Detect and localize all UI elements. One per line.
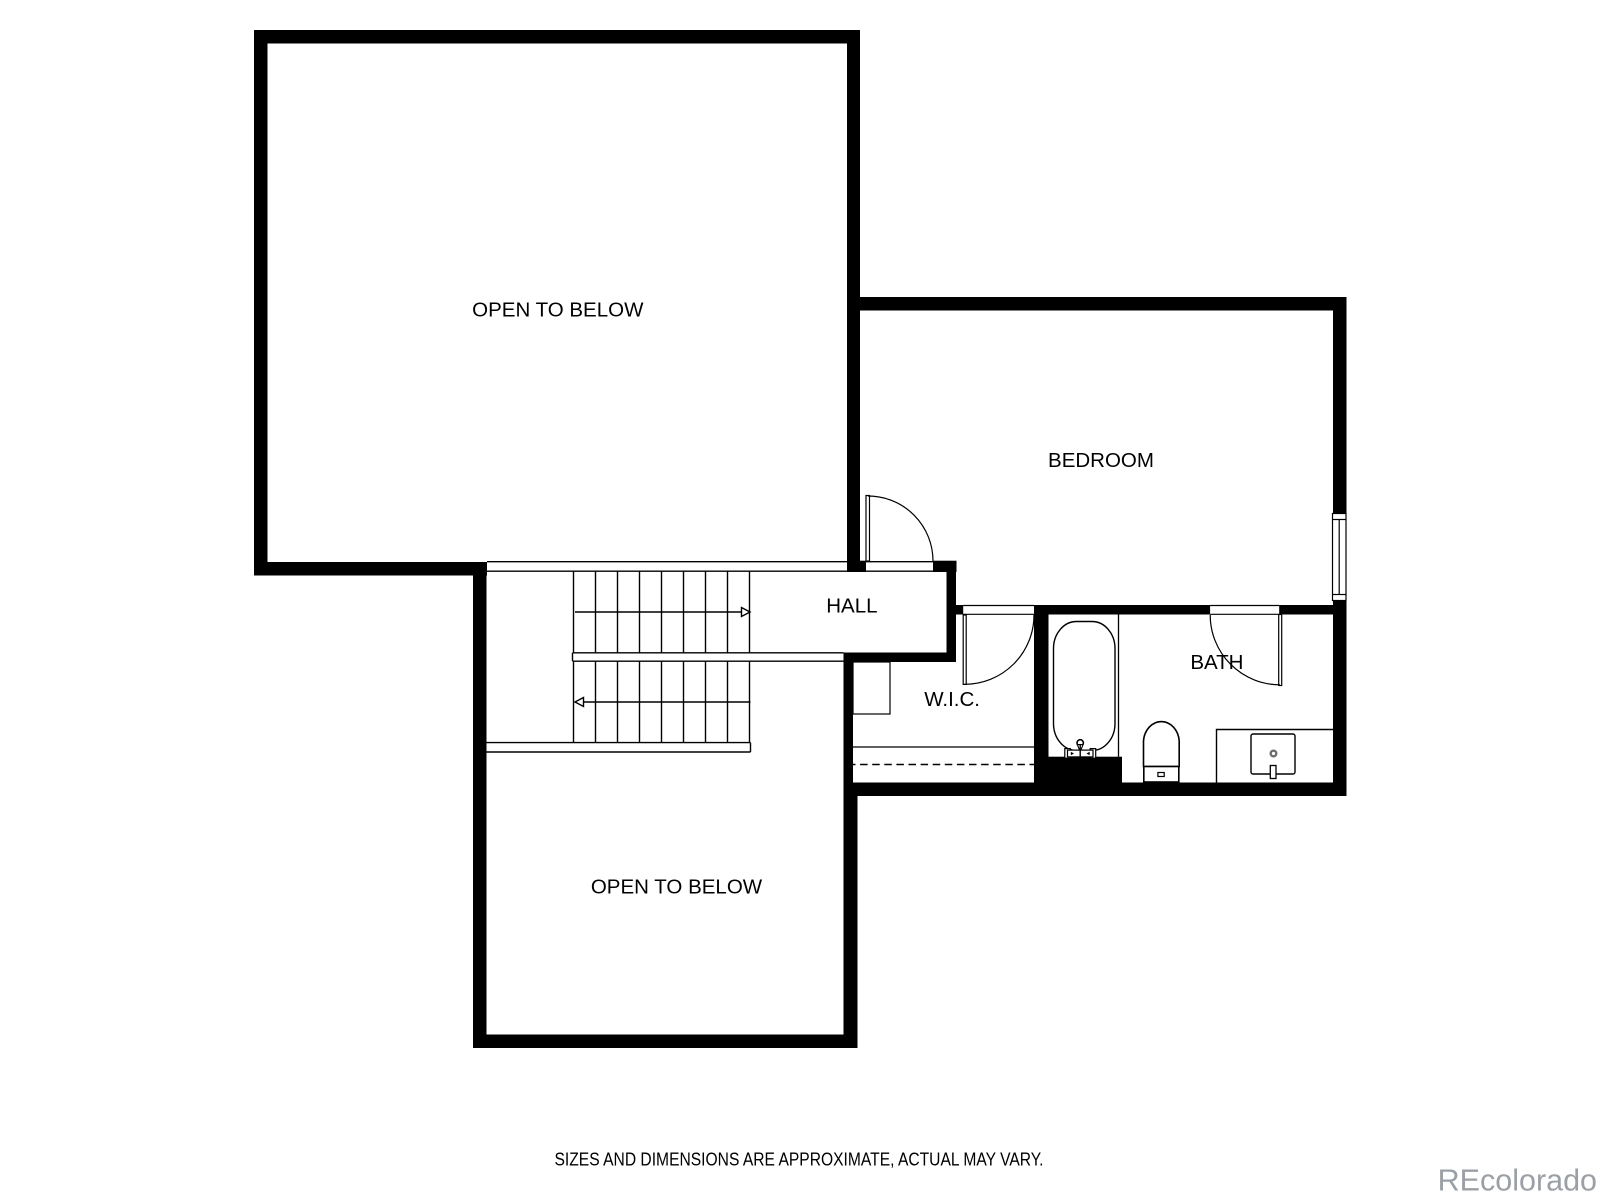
svg-text:REcolorado: REcolorado xyxy=(1438,1164,1597,1198)
svg-text:BEDROOM: BEDROOM xyxy=(1048,449,1154,472)
svg-text:SIZES AND DIMENSIONS ARE APPRO: SIZES AND DIMENSIONS ARE APPROXIMATE, AC… xyxy=(555,1149,1044,1169)
svg-text:OPEN TO BELOW: OPEN TO BELOW xyxy=(472,299,644,322)
svg-text:W.I.C.: W.I.C. xyxy=(924,688,980,711)
svg-text:BATH: BATH xyxy=(1190,651,1243,674)
svg-text:OPEN TO BELOW: OPEN TO BELOW xyxy=(591,875,763,898)
svg-text:HALL: HALL xyxy=(826,595,877,618)
